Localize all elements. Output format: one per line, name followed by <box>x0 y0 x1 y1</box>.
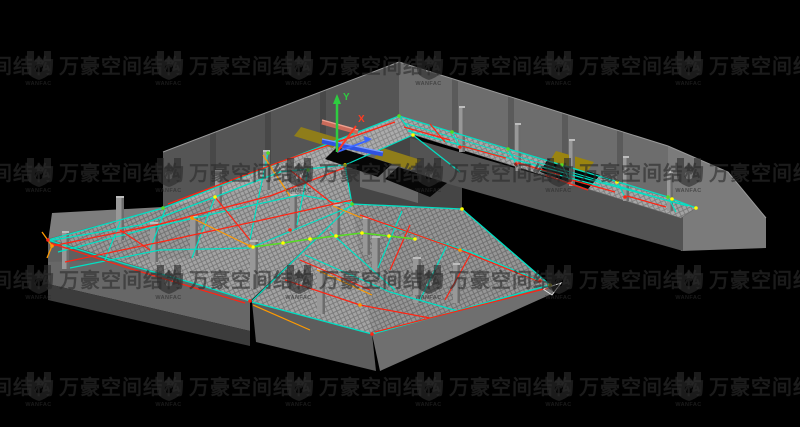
node-dot <box>306 168 310 172</box>
node-dot <box>514 162 518 166</box>
node-dot <box>694 206 698 210</box>
structure-model: YX <box>0 0 800 427</box>
node-dot <box>370 332 374 336</box>
viewport-3d[interactable]: YX <box>0 0 800 427</box>
node-dot <box>350 202 354 206</box>
node-dot <box>358 303 362 307</box>
node-dot <box>666 195 670 199</box>
node-dot <box>360 231 364 235</box>
cad-app-screen: YX WANFAC万豪空间结构WANFAC万豪空间结构WANFAC万豪空间结构W… <box>0 0 800 427</box>
node-dot <box>460 207 464 211</box>
node-dot <box>397 114 401 118</box>
node-dot <box>450 130 454 134</box>
node-dot <box>411 133 415 137</box>
node-dot <box>288 228 292 232</box>
node-dot <box>548 283 552 287</box>
node-dot <box>213 195 217 199</box>
node-dot <box>161 206 165 210</box>
node-dot <box>568 179 572 183</box>
node-dot <box>670 197 674 201</box>
node-dot <box>387 234 391 238</box>
node-dot <box>46 238 50 242</box>
node-dot <box>190 216 194 220</box>
wall-pilaster <box>452 79 458 134</box>
node-dot <box>248 299 252 303</box>
node-dot <box>623 195 627 199</box>
node-dot <box>560 163 564 167</box>
node-dot <box>281 241 285 245</box>
x-axis-label: X <box>358 114 365 125</box>
column <box>116 196 124 240</box>
wall-pilaster <box>508 96 514 151</box>
column <box>372 236 380 278</box>
node-dot <box>343 163 347 167</box>
node-dot <box>266 151 270 155</box>
node-dot <box>308 237 312 241</box>
node-dot <box>334 234 338 238</box>
node-dot <box>615 180 619 184</box>
node-dot <box>458 145 462 149</box>
column <box>363 217 370 255</box>
node-dot <box>538 279 542 283</box>
node-dot <box>458 248 462 252</box>
node-dot <box>506 147 510 151</box>
node-dot <box>50 244 54 248</box>
node-dot <box>248 244 252 248</box>
y-axis-label: Y <box>343 92 350 103</box>
column <box>413 257 421 303</box>
node-dot <box>413 237 417 241</box>
wall-pilaster <box>617 130 623 185</box>
